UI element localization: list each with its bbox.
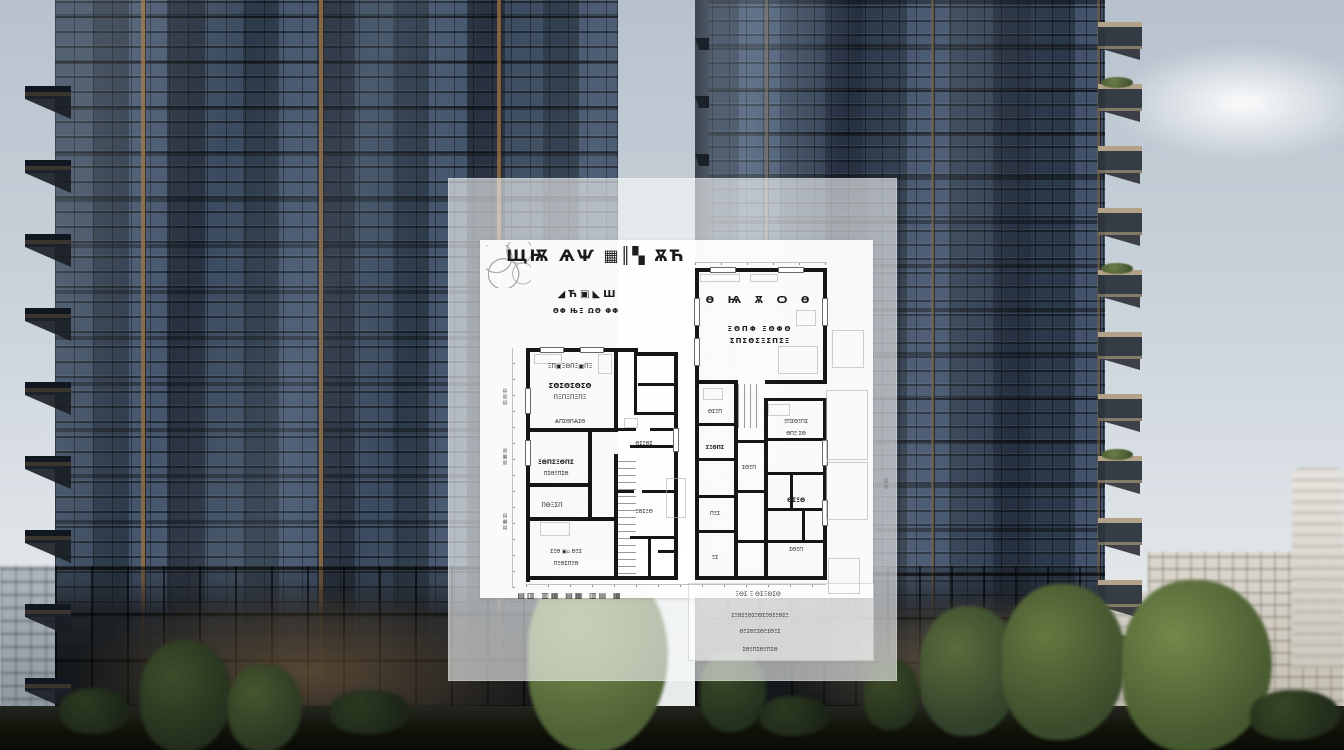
plan-label: ▤▥ ▥▦ ▤▦ ▥▤ ▦ — [517, 592, 622, 600]
plan-label: ΣΞΘΠΣ — [706, 446, 724, 451]
scene: ЩѬ ѦѰ ▦║▚ ѪЋ◢Ћ▣◣ШΘΦ ЊΞ ΩΘ ΦΦѲ Ѩ Ѫ Ѻ ѲΞΘΠ… — [0, 0, 1344, 750]
plan-wall — [634, 352, 637, 414]
plan-label: ▥▦▥ — [502, 448, 507, 466]
plan-label: ΞΘΣ Ξ ΘΣΞΘΣΘ — [735, 592, 780, 598]
right-tower-balcony — [1098, 332, 1142, 372]
plan-faint-line — [666, 478, 686, 518]
plan-wall — [634, 352, 678, 356]
plan-label: ΘΣΞΘ — [787, 498, 805, 504]
plan-faint-line — [750, 274, 778, 282]
plan-faint-line — [832, 330, 864, 368]
plan-wall — [738, 440, 764, 443]
plan-wall — [767, 438, 825, 441]
balcony-plant — [1101, 77, 1133, 88]
plan-wall — [638, 383, 678, 386]
left-tower-balcony — [25, 530, 71, 566]
background-tower-far-right — [1292, 468, 1344, 668]
plan-wall — [614, 490, 634, 493]
plan-label: ΣΞΘΣΞΘΣΞΘΣΞΘΣΞΘΣΞ — [731, 614, 789, 619]
right-tower-balcony — [1098, 22, 1142, 62]
plan-label: ΣΘΞΠ — [789, 548, 803, 553]
right-tower-balcony — [1098, 456, 1142, 496]
plan-window — [778, 267, 804, 273]
plan-wall — [658, 550, 674, 553]
plan-faint-line — [624, 418, 638, 428]
plan-wall — [767, 472, 825, 475]
plan-label: ѦΠΣΘΠѦΣΘ — [555, 420, 586, 425]
plan-faint-line — [700, 274, 740, 282]
plan-label: ΞΠ▣ΞΘΠΞ▣ΠΞ — [548, 364, 593, 370]
plan-label: ▤▥▤ — [502, 388, 507, 406]
plan-label: Ѳ Ѩ Ѫ Ѻ Ѳ — [706, 296, 815, 306]
plan-faint-line — [778, 346, 818, 374]
plan-wall — [526, 576, 678, 580]
plan-wall — [614, 428, 636, 431]
plan-wall — [648, 538, 651, 580]
plan-faint-line — [598, 354, 612, 374]
plan-wall — [695, 576, 827, 580]
plan-stairs — [738, 384, 760, 428]
plan-wall — [588, 432, 592, 520]
right-tower-balcony — [1098, 84, 1142, 124]
plan-label: ◢Ћ▣◣Ш — [558, 290, 619, 300]
plan-faint-line — [826, 462, 868, 520]
plan-faint-line — [703, 388, 723, 400]
plan-label: ▤▥ — [883, 478, 888, 490]
plan-window — [673, 428, 679, 452]
plan-wall — [695, 458, 737, 461]
plan-window — [694, 338, 700, 366]
plan-faint-line — [796, 310, 816, 326]
plan-wall — [734, 380, 738, 580]
plan-label: ΞΘΠΣΞ — [547, 484, 564, 489]
plan-wall — [767, 540, 825, 543]
floorplan-layer: ЩѬ ѦѰ ▦║▚ ѪЋ◢Ћ▣◣ШΘΦ ЊΞ ΩΘ ΦΦѲ Ѩ Ѫ Ѻ ѲΞΘΠ… — [448, 178, 897, 681]
left-tower-balcony — [25, 604, 71, 640]
plan-wall — [823, 268, 827, 384]
plan-wall — [614, 348, 618, 432]
plan-label: ΠΞΘΣΠΞΘ — [554, 562, 579, 567]
left-tower-balcony — [25, 234, 71, 270]
left-tower-balcony — [25, 308, 71, 344]
tree — [140, 640, 232, 750]
plan-faint-line — [828, 558, 860, 594]
left-tower-balcony — [25, 86, 71, 122]
cloud — [1108, 44, 1344, 162]
tree-right-large — [1122, 580, 1272, 750]
plan-wall — [695, 380, 737, 384]
plan-label: ΞΘΠΣΞΘΠΣ — [538, 460, 574, 466]
balcony-plant — [1101, 449, 1133, 460]
plan-label: ΞΣ — [712, 556, 718, 561]
balcony-plant — [1101, 263, 1133, 274]
plan-wall — [790, 472, 793, 510]
plan-label: ΣΞΘ ▣▫ ΘΞΣ — [550, 550, 582, 555]
plan-wall — [634, 412, 678, 415]
plan-window — [580, 347, 604, 353]
plan-faint-line — [874, 328, 892, 388]
plan-label: ЩѬ ѦѰ ▦║▚ ѪЋ — [506, 248, 685, 264]
plan-wall — [674, 352, 678, 580]
plan-wall — [767, 508, 825, 511]
plan-label: ΘΠΞ ΣΘ — [786, 432, 806, 437]
plan-wall — [695, 530, 737, 533]
plan-window — [525, 440, 531, 466]
plan-label: ΞΠΣΘΞΠΣ — [784, 420, 808, 425]
plan-dimension-line — [512, 348, 515, 588]
plan-faint-line — [540, 522, 570, 536]
plan-stairs — [616, 456, 636, 574]
left-tower-balcony — [25, 382, 71, 418]
plan-faint-line — [826, 390, 868, 460]
plan-wall — [764, 398, 826, 401]
plan-label: ΣΘΣΘΣΘΣΘ — [549, 383, 592, 390]
plan-wall — [764, 398, 768, 580]
tree — [228, 664, 302, 750]
plan-label: ΞΘΣΞΘ — [635, 510, 652, 515]
plan-wall — [738, 540, 764, 543]
plan-label: ΣΘΞΠ — [742, 466, 756, 471]
plan-label: ΘΦ ЊΞ ΩΘ ΦΦ — [553, 308, 619, 315]
plan-label: ΠΞΠΞΠΞΠΞ — [553, 395, 586, 401]
plan-wall — [630, 536, 678, 539]
plan-window — [822, 298, 828, 326]
plan-wall — [738, 490, 764, 493]
right-tower-balcony — [1098, 146, 1142, 186]
plan-label: ΞΘΠΦ ΞΘΦΘ — [728, 326, 793, 333]
plan-dimension-line — [526, 584, 826, 587]
plan-label: ΘΣΞΠ — [708, 410, 722, 415]
plan-wall — [695, 495, 737, 498]
plan-faint-line — [768, 404, 790, 416]
plan-wall — [765, 380, 827, 384]
plan-label: ΣΠΣΘΣΞΣΠΣΞ — [730, 338, 790, 345]
plan-label: ΠΞΣ — [710, 512, 720, 517]
plan-label: ΣΘΞΠΣΘΞΠΣΘ — [742, 648, 777, 653]
plan-window — [710, 267, 736, 273]
plan-wall — [802, 508, 805, 542]
right-tower-balcony — [1098, 518, 1142, 558]
plan-label: ΘΞΣΘΞΣΘΞΣΘΞΣ — [739, 630, 780, 635]
plan-wall — [526, 517, 616, 521]
left-tower-balcony — [25, 160, 71, 196]
plan-label: ΘΣΞΘΣ — [635, 442, 652, 447]
right-tower-balcony — [1098, 270, 1142, 310]
plan-wall — [526, 428, 618, 432]
plan-label: ΠΘΞΣΠ — [541, 503, 562, 509]
right-tower-balcony — [1098, 208, 1142, 248]
plan-window — [525, 388, 531, 414]
left-tower-balcony — [25, 456, 71, 492]
plan-label: ΠΣΘΞΠΣΘ — [544, 472, 569, 477]
plan-label: ▤▦▤ — [502, 513, 507, 531]
floorplan-overlay: ЩѬ ѦѰ ▦║▚ ѪЋ◢Ћ▣◣ШΘΦ ЊΞ ΩΘ ΦΦѲ Ѩ Ѫ Ѻ ѲΞΘΠ… — [448, 178, 897, 681]
right-tower-balcony — [1098, 394, 1142, 434]
plan-wall — [695, 423, 737, 426]
plan-window — [694, 298, 700, 326]
plan-dimension-line — [695, 262, 827, 265]
plan-window — [540, 347, 564, 353]
plan-wall — [614, 454, 618, 580]
plan-faint-line — [874, 518, 892, 568]
